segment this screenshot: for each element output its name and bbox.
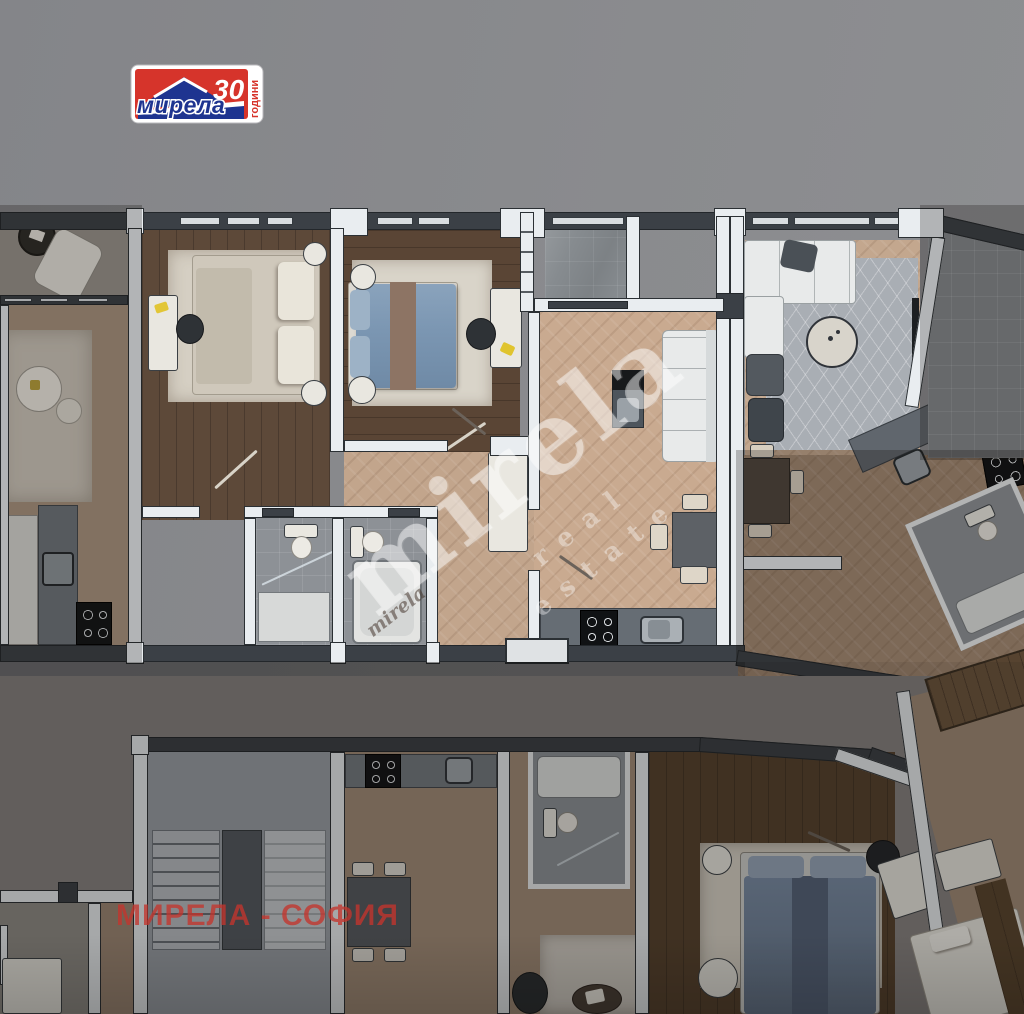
- bedroom2-pillow: [350, 290, 370, 330]
- white-furniture: [2, 958, 62, 1014]
- shower-tray: [258, 592, 330, 642]
- decor-item: [30, 380, 40, 390]
- desk-chair: [466, 318, 496, 350]
- wall: [497, 740, 510, 1014]
- logo-number: 30: [213, 74, 245, 105]
- wall: [133, 752, 148, 1014]
- entry-door: [505, 638, 569, 664]
- bedside-stool: [698, 958, 738, 998]
- lower-bathroom: [528, 747, 630, 889]
- watermark-city: МИРЕЛА - СОФИЯ: [116, 899, 416, 933]
- bathtub: [954, 565, 1024, 635]
- bedroom1-pillow: [278, 326, 314, 384]
- bedroom1-blanket-fold: [196, 268, 252, 384]
- wall: [520, 212, 534, 312]
- bedroom2-pillow: [350, 336, 370, 378]
- wall-stub: [58, 882, 78, 903]
- dining-chair: [748, 524, 772, 538]
- wall: [142, 506, 200, 518]
- window-segment: [794, 217, 870, 225]
- wall-pillar: [898, 208, 944, 238]
- exterior-wall-left: [0, 305, 9, 645]
- bedside-stool: [702, 845, 732, 875]
- neighbor-stove: [76, 602, 112, 645]
- sink-basin: [648, 620, 670, 639]
- window-segment: [267, 217, 293, 225]
- window-segment: [552, 217, 624, 225]
- neighbor-wall: [738, 556, 842, 570]
- window-segment: [180, 217, 220, 225]
- center-terrace-floor: [545, 216, 638, 310]
- dining-chair: [680, 566, 708, 584]
- wall-pillar: [126, 642, 144, 664]
- wall: [244, 518, 256, 645]
- window-segment: [40, 298, 68, 302]
- mirela-logo: мирела 30 години: [130, 64, 264, 124]
- stove: [365, 754, 401, 788]
- armchair: [746, 354, 784, 396]
- neighbor-chair: [56, 398, 82, 424]
- dining-chair: [352, 862, 374, 876]
- stove: [580, 610, 618, 646]
- bathtub: [537, 756, 621, 798]
- floor-plan-render: mirela real estate mirela МИРЕЛА - СОФИЯ…: [0, 0, 1024, 1014]
- dining-chair: [352, 948, 374, 962]
- bathroom-door: [262, 508, 294, 517]
- lower-bed-fold: [792, 876, 828, 1014]
- sink: [445, 757, 473, 784]
- dining-chair: [384, 948, 406, 962]
- wall: [88, 903, 101, 1014]
- wall-pillar: [330, 642, 346, 664]
- exterior-wall: [133, 737, 703, 752]
- neighbor-sink: [42, 552, 74, 586]
- bedroom1-pillow: [278, 262, 314, 320]
- shower-glass: [557, 832, 620, 867]
- toilet-tank: [543, 808, 557, 838]
- window-segment: [227, 217, 260, 225]
- window-segment: [377, 217, 413, 225]
- bedside-stool: [348, 376, 376, 404]
- coffee-table-decor: [836, 330, 840, 334]
- office-chair: [512, 972, 548, 1014]
- dining-chair: [384, 862, 406, 876]
- toilet-bowl: [557, 812, 578, 833]
- wall: [330, 752, 345, 1014]
- lower-bed-pillow: [748, 856, 804, 878]
- mirela-logo-graphic: мирела 30 години: [130, 64, 264, 124]
- building-shadow: [0, 662, 745, 676]
- apartment-divider-wall: [716, 216, 744, 662]
- window-segment: [752, 217, 789, 225]
- wall-pillar: [131, 735, 149, 755]
- bedside-stool: [350, 264, 376, 290]
- armchair: [748, 398, 784, 442]
- wall: [128, 228, 142, 648]
- bedside-stool: [303, 242, 327, 266]
- desk-chair: [176, 314, 204, 344]
- wall: [635, 752, 649, 1014]
- far-right-terrace: [928, 232, 1024, 458]
- lower-bed-pillow: [810, 856, 866, 878]
- dining-chair: [682, 494, 708, 510]
- bedroom2-runner: [390, 282, 416, 390]
- coffee-table: [806, 316, 858, 368]
- logo-word: години: [249, 80, 261, 118]
- wall-pillar: [426, 642, 440, 664]
- window-segment: [4, 298, 32, 302]
- coffee-table-decor: [828, 336, 833, 341]
- l-sofa-side: [744, 296, 784, 358]
- bedside-stool: [301, 380, 327, 406]
- neighbor-dining-table: [742, 458, 790, 524]
- window-segment: [78, 298, 108, 302]
- window-segment: [418, 217, 450, 225]
- dining-chair: [790, 470, 804, 494]
- dining-chair: [750, 444, 774, 458]
- wall: [330, 228, 344, 452]
